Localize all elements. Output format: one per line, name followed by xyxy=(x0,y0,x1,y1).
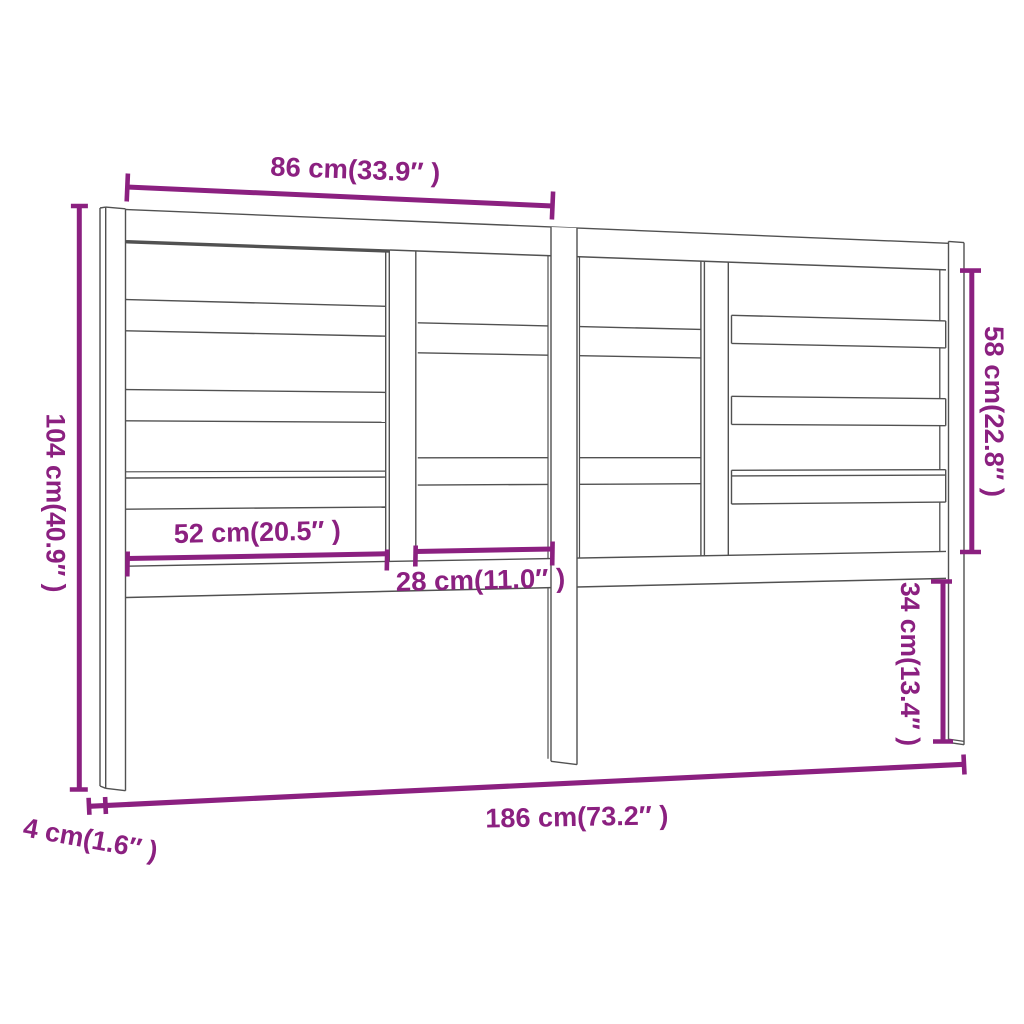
svg-text:104 cm(40.9″ ): 104 cm(40.9″ ) xyxy=(41,414,71,593)
svg-text:34 cm(13.4″ ): 34 cm(13.4″ ) xyxy=(895,582,925,746)
svg-text:186 cm(73.2″ ): 186 cm(73.2″ ) xyxy=(485,800,668,833)
svg-text:28 cm(11.0″ ): 28 cm(11.0″ ) xyxy=(395,563,565,597)
svg-text:58 cm(22.8″ ): 58 cm(22.8″ ) xyxy=(979,326,1009,497)
svg-text:52 cm(20.5″ ): 52 cm(20.5″ ) xyxy=(173,515,341,549)
